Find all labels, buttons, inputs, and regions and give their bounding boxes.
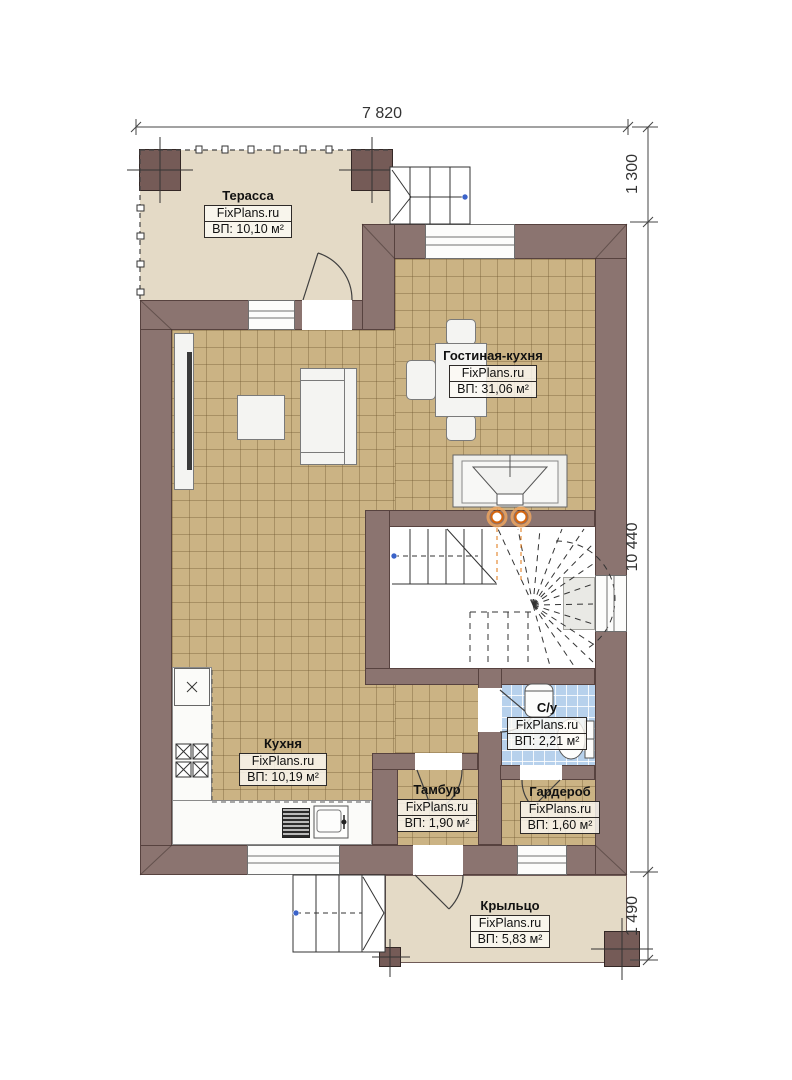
dim-top-width: 7 820 <box>362 105 402 122</box>
terrace-column-right <box>351 149 393 191</box>
sofa-armrest-top <box>300 368 346 381</box>
dishwasher <box>282 808 310 838</box>
dining-chair-top <box>446 319 476 345</box>
node-marker <box>462 194 468 200</box>
window-kitchen <box>247 845 340 875</box>
bathroom-door-opening <box>478 688 502 732</box>
brand-link[interactable]: FixPlans.ru <box>205 206 291 222</box>
room-label-porch: Крыльцо FixPlans.ru ВП: 5,83 м² <box>466 898 554 948</box>
sofa-armrest-bottom <box>300 452 346 465</box>
room-info-box: FixPlans.ru ВП: 10,19 м² <box>239 753 327 786</box>
room-label-living: Гостиная-кухня FixPlans.ru ВП: 31,06 м² <box>432 348 554 398</box>
room-title: Терасса <box>222 188 274 203</box>
wall-stair-left <box>365 510 390 685</box>
staircase-porch <box>293 875 385 952</box>
room-label-bathroom: С/у FixPlans.ru ВП: 2,21 м² <box>500 700 594 750</box>
brand-link[interactable]: FixPlans.ru <box>521 802 600 818</box>
room-area: ВП: 31,06 м² <box>450 382 536 397</box>
room-info-box: FixPlans.ru ВП: 2,21 м² <box>507 717 588 750</box>
porch-column-right <box>604 931 640 967</box>
room-area: ВП: 2,21 м² <box>508 734 587 749</box>
room-info-box: FixPlans.ru ВП: 10,10 м² <box>204 205 292 238</box>
sofa-backrest <box>344 368 357 465</box>
room-title: Крыльцо <box>480 898 539 913</box>
dining-chair-bottom <box>446 415 476 441</box>
wall-stair-top <box>365 510 595 527</box>
room-title: С/у <box>537 700 557 715</box>
room-title: Кухня <box>264 736 302 751</box>
brand-link[interactable]: FixPlans.ru <box>450 366 536 382</box>
tv-screen <box>187 352 192 470</box>
kitchen-counter-bottom <box>172 800 372 845</box>
room-info-box: FixPlans.ru ВП: 31,06 м² <box>449 365 537 398</box>
entrance-door-opening <box>413 845 463 875</box>
room-label-kitchen: Кухня FixPlans.ru ВП: 10,19 м² <box>235 736 331 786</box>
room-label-wardrobe: Гардероб FixPlans.ru ВП: 1,60 м² <box>516 784 604 834</box>
window-wardrobe <box>517 845 567 875</box>
room-title: Гостиная-кухня <box>443 348 543 363</box>
room-area: ВП: 10,19 м² <box>240 770 326 785</box>
room-area: ВП: 5,83 м² <box>471 932 550 947</box>
vestibule-door-opening <box>415 753 462 770</box>
wall-right <box>595 224 627 875</box>
wall-facade-step <box>362 224 395 330</box>
dim-side-terrace: 1 300 <box>624 154 641 194</box>
window-right <box>595 575 627 632</box>
brand-link[interactable]: FixPlans.ru <box>240 754 326 770</box>
terrace-door-opening <box>302 300 352 330</box>
porch-column-left <box>379 947 401 967</box>
room-title: Тамбур <box>413 782 460 797</box>
terrace-column-left <box>139 149 181 191</box>
room-area: ВП: 10,10 м² <box>205 222 291 237</box>
room-label-vestibule: Тамбур FixPlans.ru ВП: 1,90 м² <box>394 782 480 832</box>
room-title: Гардероб <box>529 784 590 799</box>
node-marker <box>293 910 299 916</box>
kitchen-appliance-box <box>174 668 210 706</box>
window-top <box>425 224 515 259</box>
room-area: ВП: 1,90 м² <box>398 816 477 831</box>
room-area: ВП: 1,60 м² <box>521 818 600 833</box>
wall-left <box>140 300 172 875</box>
room-label-terrace: Терасса FixPlans.ru ВП: 10,10 м² <box>196 188 300 238</box>
floor-plan-canvas: 7 820 1 300 10 440 1 490 <box>0 0 792 1080</box>
room-info-box: FixPlans.ru ВП: 5,83 м² <box>470 915 551 948</box>
right-window-niche <box>563 577 595 630</box>
brand-link[interactable]: FixPlans.ru <box>471 916 550 932</box>
wardrobe-door-opening <box>520 765 562 780</box>
brand-link[interactable]: FixPlans.ru <box>398 800 477 816</box>
room-info-box: FixPlans.ru ВП: 1,90 м² <box>397 799 478 832</box>
room-info-box: FixPlans.ru ВП: 1,60 м² <box>520 801 601 834</box>
brand-link[interactable]: FixPlans.ru <box>508 718 587 734</box>
window-terrace-wall <box>248 300 295 330</box>
coffee-table <box>237 395 285 440</box>
staircase-terrace <box>390 167 470 224</box>
